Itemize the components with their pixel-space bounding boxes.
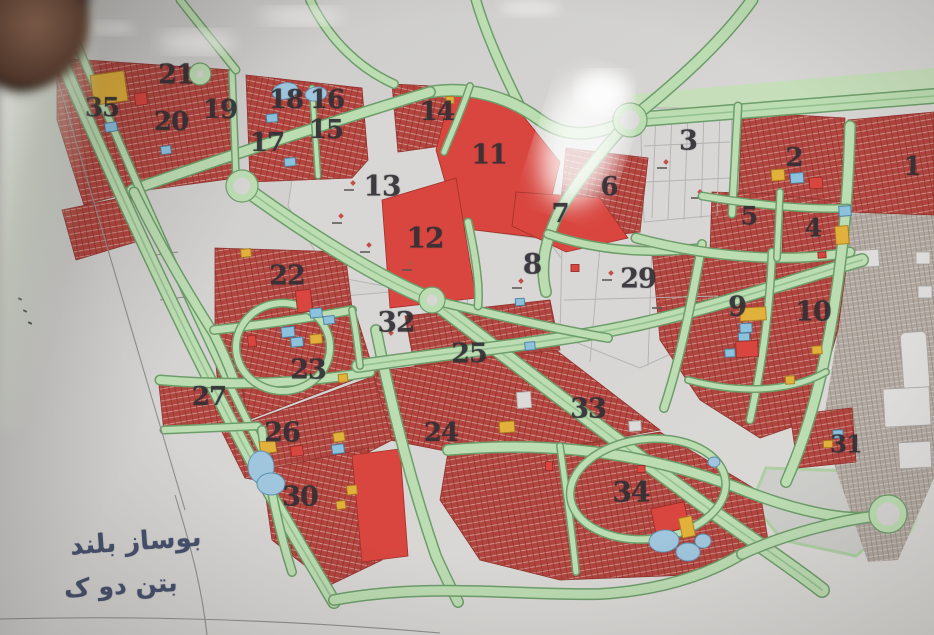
blue-facility-parcel xyxy=(291,337,304,347)
red-facility-parcel xyxy=(736,340,759,357)
map-photo-frame: 3521201918161715141113673215412829229103… xyxy=(0,0,934,635)
red-facility-parcel xyxy=(818,252,826,259)
zone-label-26: 26 xyxy=(264,418,300,449)
zone-30-strip-block xyxy=(352,449,408,562)
yellow-facility-parcel xyxy=(835,226,849,245)
red-facility-parcel xyxy=(637,466,645,473)
roundabout xyxy=(873,499,903,529)
zone-label-20: 20 xyxy=(154,107,188,137)
zone-label-34: 34 xyxy=(613,476,650,509)
red-facility-parcel xyxy=(809,177,823,189)
roundabout xyxy=(423,291,441,309)
zone-label-24: 24 xyxy=(424,418,458,448)
zone-label-11: 11 xyxy=(471,140,507,171)
yellow-facility-parcel xyxy=(310,334,323,344)
zone-label-23: 23 xyxy=(290,355,326,386)
zone-label-31: 31 xyxy=(830,430,861,459)
zone-label-9: 9 xyxy=(728,292,746,323)
yellow-facility-parcel xyxy=(347,485,358,495)
blue-facility-parcel xyxy=(515,298,524,306)
blue-facility-parcel xyxy=(310,308,323,318)
white-facility-parcel xyxy=(629,421,642,432)
zone-label-22: 22 xyxy=(269,261,305,292)
blue-facility-parcel xyxy=(839,206,852,217)
zone-label-13: 13 xyxy=(364,170,401,203)
zone-label-29: 29 xyxy=(620,264,656,295)
blue-facility-parcel xyxy=(790,173,804,184)
roundabout xyxy=(193,67,207,81)
yellow-facility-parcel xyxy=(785,376,794,384)
zone-label-17: 17 xyxy=(250,128,284,158)
roundabout xyxy=(230,174,254,198)
blue-facility-parcel xyxy=(331,444,344,455)
pond-park xyxy=(676,543,700,561)
red-facility-parcel xyxy=(247,335,256,347)
zone-1 xyxy=(846,112,934,215)
zone-label-3: 3 xyxy=(679,126,697,157)
yellow-facility-parcel xyxy=(499,421,515,433)
yellow-facility-parcel xyxy=(336,500,346,509)
pond-park xyxy=(257,473,285,495)
zone-label-8: 8 xyxy=(523,248,541,281)
blue-facility-parcel xyxy=(323,315,335,324)
pond-park xyxy=(708,457,720,467)
blue-facility-parcel xyxy=(740,323,752,333)
red-facility-parcel xyxy=(546,462,553,471)
yellow-facility-parcel xyxy=(812,346,822,355)
blue-facility-parcel xyxy=(281,326,295,337)
yellow-facility-parcel xyxy=(333,432,345,442)
zone-label-2: 2 xyxy=(785,143,802,173)
zone-label-33: 33 xyxy=(570,394,606,425)
blue-facility-parcel xyxy=(738,333,749,342)
zone-label-7: 7 xyxy=(551,199,568,229)
zone-label-10: 10 xyxy=(795,297,831,328)
blue-facility-parcel xyxy=(160,145,171,154)
white-facility-parcel xyxy=(516,392,531,409)
zone-label-18: 18 xyxy=(269,85,303,115)
zone-label-1: 1 xyxy=(903,152,920,182)
yellow-facility-parcel xyxy=(338,374,348,383)
yellow-facility-parcel xyxy=(241,248,252,257)
zone-label-27: 27 xyxy=(192,382,226,412)
zone-label-19: 19 xyxy=(203,95,237,125)
red-facility-parcel xyxy=(571,265,579,272)
red-facility-parcel xyxy=(134,92,148,106)
blue-facility-parcel xyxy=(104,122,117,133)
persian-note-line2: بتن دو ک xyxy=(63,568,178,603)
zone-label-35: 35 xyxy=(85,93,119,123)
zone-label-5: 5 xyxy=(741,202,757,231)
pond-park xyxy=(695,534,711,548)
yellow-facility-parcel xyxy=(771,169,785,181)
zone-label-16: 16 xyxy=(310,85,344,115)
zone-label-25: 25 xyxy=(451,339,487,370)
blue-facility-parcel xyxy=(284,158,296,167)
zone-label-30: 30 xyxy=(282,482,318,513)
blue-facility-parcel xyxy=(525,342,536,351)
zone-label-6: 6 xyxy=(600,172,617,202)
zone-label-15: 15 xyxy=(309,115,343,145)
zone-label-12: 12 xyxy=(407,222,444,255)
zone-label-4: 4 xyxy=(805,214,821,243)
zone-label-14: 14 xyxy=(420,97,454,127)
zone-label-21: 21 xyxy=(158,60,194,91)
blue-facility-parcel xyxy=(725,349,735,358)
zone-label-32: 32 xyxy=(378,306,415,339)
